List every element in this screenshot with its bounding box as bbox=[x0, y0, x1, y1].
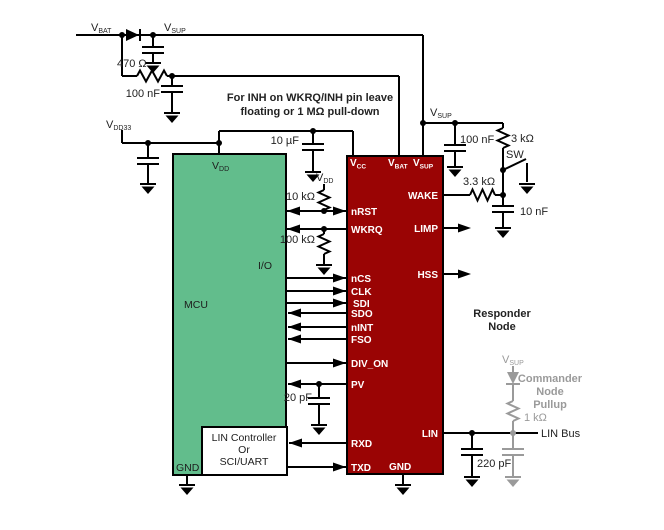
vdd33-label: VDD33 bbox=[106, 119, 131, 132]
commander-label-line2: Node bbox=[536, 386, 564, 398]
pin-gnd: GND bbox=[389, 462, 411, 473]
resistor-3k bbox=[498, 123, 509, 148]
ground-symbol bbox=[464, 477, 480, 487]
pin-fso: FSO bbox=[351, 335, 372, 346]
pin-hss: HSS bbox=[417, 270, 438, 281]
pin-lin: LIN bbox=[422, 429, 438, 440]
vdd-pullup-label: VDD bbox=[316, 172, 333, 185]
r3k-value: 3 kΩ bbox=[511, 133, 534, 145]
c100n-vbat-value: 100 nF bbox=[126, 88, 161, 100]
ground-symbol bbox=[316, 265, 332, 275]
ground-symbol bbox=[164, 113, 180, 123]
r470-value: 470 Ω bbox=[117, 58, 147, 70]
mcu-gnd-label: GND bbox=[176, 462, 200, 474]
reverse-blocking-diode bbox=[126, 29, 140, 41]
lin-controller-line2: Or bbox=[238, 444, 250, 456]
ground-symbol bbox=[519, 184, 535, 194]
pin-divon: DIV_ON bbox=[351, 359, 388, 370]
c220p-value: 220 pF bbox=[477, 458, 512, 470]
vsup-node-label: VSUP bbox=[430, 107, 452, 120]
r100k-value: 100 kΩ bbox=[280, 234, 315, 246]
lin-controller-line1: LIN Controller bbox=[212, 432, 277, 444]
pin-clk: CLK bbox=[351, 287, 372, 298]
resistor-10k-pullup bbox=[319, 184, 330, 211]
commander-label-line1: Commander bbox=[518, 373, 583, 385]
inh-note-line2: floating or 1 MΩ pull-down bbox=[241, 106, 380, 118]
ground-symbol bbox=[447, 167, 463, 177]
resistor-100k-pulldown bbox=[316, 229, 332, 275]
vsup-commander-label: VSUP bbox=[502, 354, 524, 367]
c100n-vsup-value: 100 nF bbox=[460, 134, 495, 146]
ground-symbol bbox=[495, 228, 511, 238]
c20p-value: 20 pF bbox=[284, 392, 312, 404]
lin-controller-line3: SCI/UART bbox=[220, 456, 269, 468]
vbat-label: VBAT bbox=[91, 22, 112, 35]
resistor-3p3k bbox=[470, 190, 495, 201]
pin-pv: PV bbox=[351, 380, 365, 391]
mcu-title: MCU bbox=[184, 299, 208, 311]
mcu-ground-symbol bbox=[179, 485, 195, 495]
pin-txd: TXD bbox=[351, 463, 371, 474]
lin-bus-label: LIN Bus bbox=[541, 428, 581, 440]
ground-symbol bbox=[140, 184, 156, 194]
transceiver-ground-symbol bbox=[395, 485, 411, 495]
vsup-label-top: VSUP bbox=[164, 22, 186, 35]
switch-sw bbox=[503, 159, 535, 194]
cap-100nF-vsup bbox=[444, 123, 466, 177]
schematic-canvas: VBAT VSUP VDD33 VDD VSUP VSUP For INH on… bbox=[0, 0, 664, 530]
r10k-value: 10 kΩ bbox=[286, 191, 315, 203]
mcu-io-label: I/O bbox=[258, 260, 272, 272]
cap-vdd33 bbox=[137, 143, 159, 194]
pin-sdo: SDO bbox=[351, 309, 373, 320]
r1k-value: 1 kΩ bbox=[524, 412, 547, 424]
gray-resistor-1k bbox=[508, 401, 519, 421]
pin-rxd: RXD bbox=[351, 439, 372, 450]
ground-symbol bbox=[505, 477, 521, 487]
inh-note-line1: For INH on WKRQ/INH pin leave bbox=[227, 92, 393, 104]
ground-symbol bbox=[311, 425, 327, 435]
c10n-value: 10 nF bbox=[520, 206, 548, 218]
pin-nint: nINT bbox=[351, 323, 373, 334]
commander-label-line3: Pullup bbox=[533, 399, 567, 411]
hss-arrow bbox=[458, 270, 471, 279]
cap-10nF bbox=[492, 195, 514, 238]
limp-arrow bbox=[458, 224, 471, 233]
r3k3-value: 3.3 kΩ bbox=[463, 176, 495, 188]
resistor-470ohm bbox=[137, 71, 167, 82]
sw-label: SW bbox=[506, 149, 524, 161]
pin-limp: LIMP bbox=[414, 224, 438, 235]
pin-wkrq: WKRQ bbox=[351, 225, 383, 236]
pin-nrst: nRST bbox=[351, 207, 377, 218]
pin-ncs: nCS bbox=[351, 274, 371, 285]
responder-node-line1: Responder bbox=[473, 308, 531, 320]
cap-100nF-vbat bbox=[161, 76, 183, 123]
c10u-value: 10 µF bbox=[271, 135, 300, 147]
pin-wake: WAKE bbox=[408, 191, 438, 202]
lin-transceiver-schematic: VBAT VSUP VDD33 VDD VSUP VSUP For INH on… bbox=[0, 0, 664, 530]
responder-node-line2: Node bbox=[488, 321, 516, 333]
